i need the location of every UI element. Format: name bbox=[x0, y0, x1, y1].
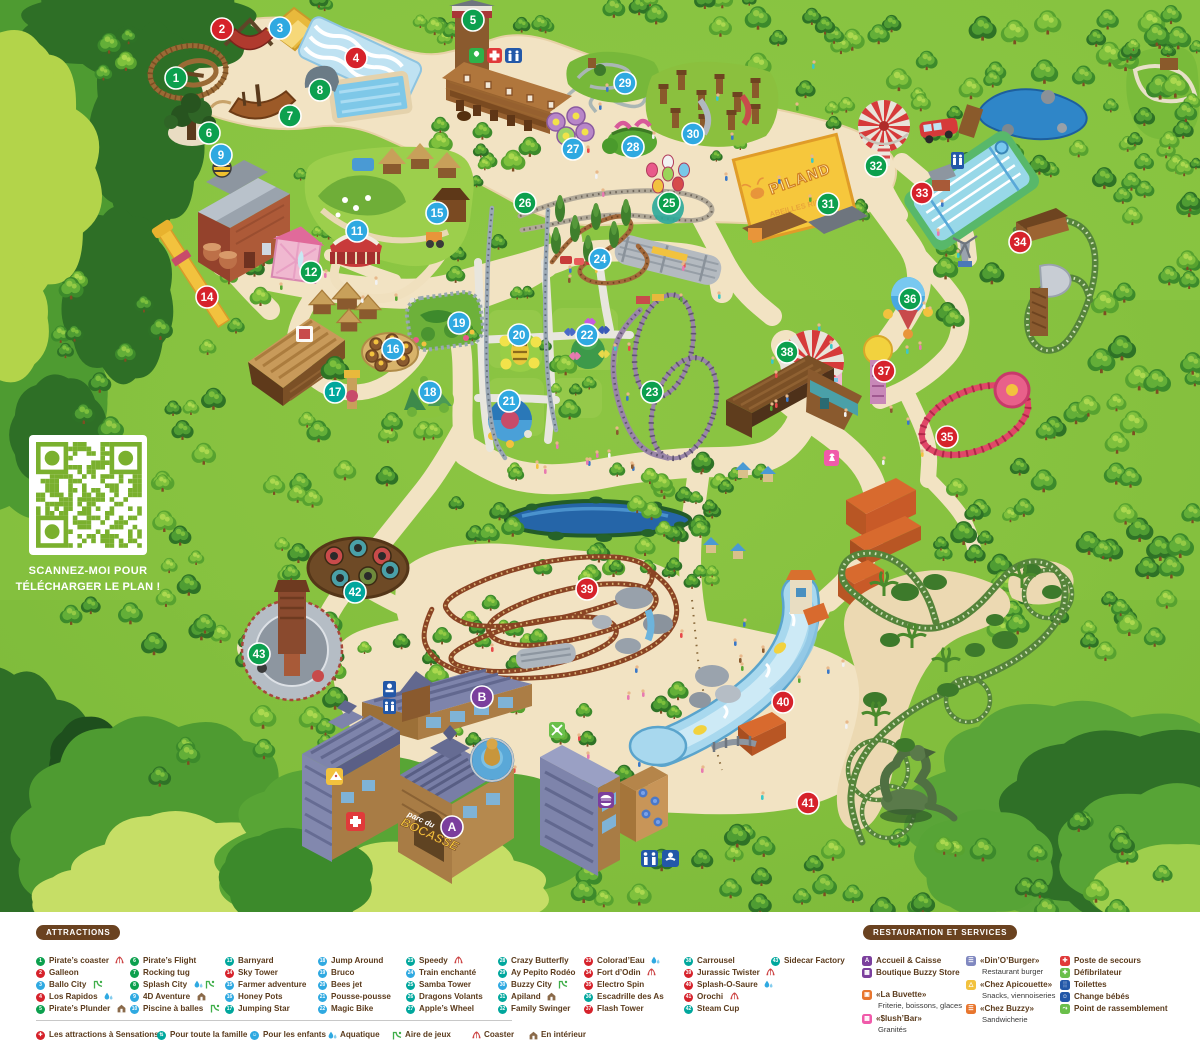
svg-text:22: 22 bbox=[581, 330, 594, 342]
svg-text:1: 1 bbox=[173, 73, 180, 85]
svg-text:26: 26 bbox=[519, 198, 532, 210]
svg-text:24: 24 bbox=[594, 254, 607, 266]
svg-text:37: 37 bbox=[878, 366, 891, 378]
svg-text:36: 36 bbox=[904, 294, 917, 306]
svg-text:23: 23 bbox=[646, 387, 659, 399]
svg-text:11: 11 bbox=[351, 226, 364, 238]
svg-text:32: 32 bbox=[870, 161, 883, 173]
svg-text:A: A bbox=[448, 820, 457, 834]
svg-text:34: 34 bbox=[1014, 237, 1027, 249]
svg-text:3: 3 bbox=[277, 23, 283, 35]
svg-text:B: B bbox=[478, 690, 487, 704]
svg-text:2: 2 bbox=[219, 24, 225, 36]
svg-text:14: 14 bbox=[201, 292, 214, 304]
svg-text:4: 4 bbox=[353, 53, 360, 65]
svg-text:38: 38 bbox=[781, 347, 794, 359]
svg-text:40: 40 bbox=[777, 697, 790, 709]
svg-text:18: 18 bbox=[424, 387, 437, 399]
svg-text:30: 30 bbox=[687, 129, 700, 141]
svg-text:33: 33 bbox=[916, 188, 929, 200]
svg-text:21: 21 bbox=[503, 396, 516, 408]
svg-text:TÉLÉCHARGER LE PLAN !: TÉLÉCHARGER LE PLAN ! bbox=[16, 580, 161, 593]
svg-text:42: 42 bbox=[349, 587, 362, 599]
svg-text:7: 7 bbox=[287, 111, 293, 123]
svg-text:17: 17 bbox=[329, 387, 342, 399]
svg-text:16: 16 bbox=[387, 344, 400, 356]
svg-text:43: 43 bbox=[253, 649, 266, 661]
svg-text:28: 28 bbox=[627, 142, 640, 154]
svg-text:19: 19 bbox=[453, 318, 466, 330]
svg-text:SCANNEZ-MOI POUR: SCANNEZ-MOI POUR bbox=[29, 565, 148, 577]
svg-text:15: 15 bbox=[431, 208, 444, 220]
svg-text:35: 35 bbox=[941, 432, 954, 444]
svg-text:9: 9 bbox=[218, 150, 224, 162]
svg-text:6: 6 bbox=[206, 128, 212, 140]
svg-text:8: 8 bbox=[317, 85, 324, 97]
svg-text:25: 25 bbox=[663, 198, 676, 210]
svg-text:20: 20 bbox=[513, 330, 526, 342]
svg-text:41: 41 bbox=[802, 798, 815, 810]
svg-text:27: 27 bbox=[567, 144, 580, 156]
svg-text:29: 29 bbox=[619, 78, 632, 90]
svg-text:31: 31 bbox=[822, 199, 835, 211]
svg-text:5: 5 bbox=[470, 15, 477, 27]
svg-text:39: 39 bbox=[581, 584, 594, 596]
svg-text:12: 12 bbox=[305, 267, 318, 279]
